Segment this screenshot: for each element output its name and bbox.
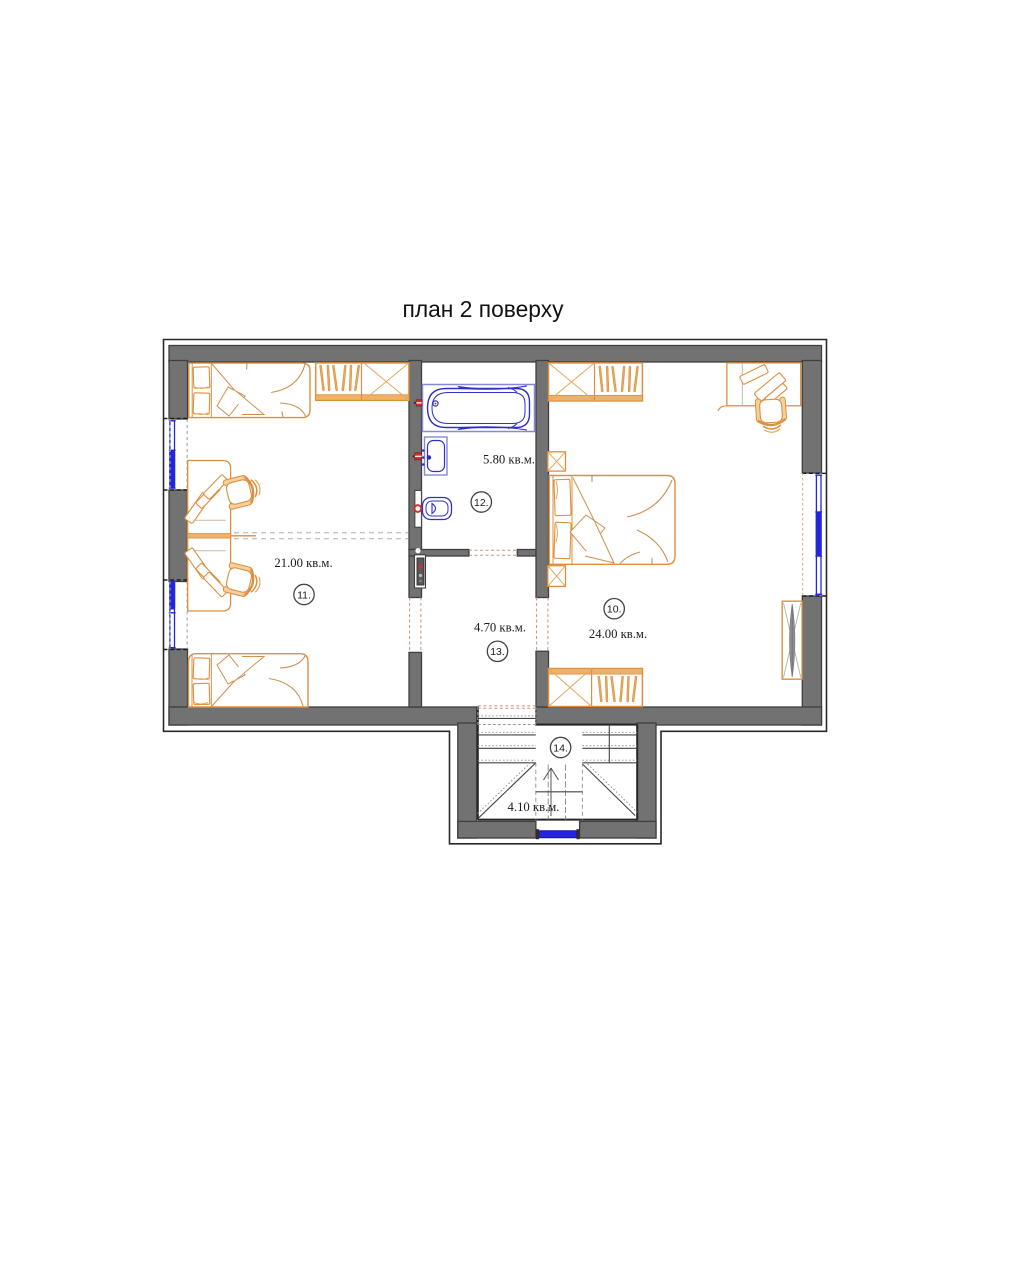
svg-text:5.80 кв.м.: 5.80 кв.м. [483, 453, 535, 467]
svg-text:24.00 кв.м.: 24.00 кв.м. [589, 627, 647, 641]
svg-text:4.10 кв.м.: 4.10 кв.м. [508, 800, 560, 814]
svg-text:13.: 13. [490, 646, 505, 658]
svg-text:14.: 14. [553, 742, 568, 754]
svg-text:11.: 11. [297, 589, 311, 601]
svg-text:12.: 12. [474, 497, 489, 509]
svg-text:план 2 поверху: план 2 поверху [402, 296, 564, 322]
svg-text:10.: 10. [607, 604, 622, 616]
svg-text:4.70 кв.м.: 4.70 кв.м. [474, 621, 526, 635]
svg-text:21.00 кв.м.: 21.00 кв.м. [274, 556, 332, 570]
